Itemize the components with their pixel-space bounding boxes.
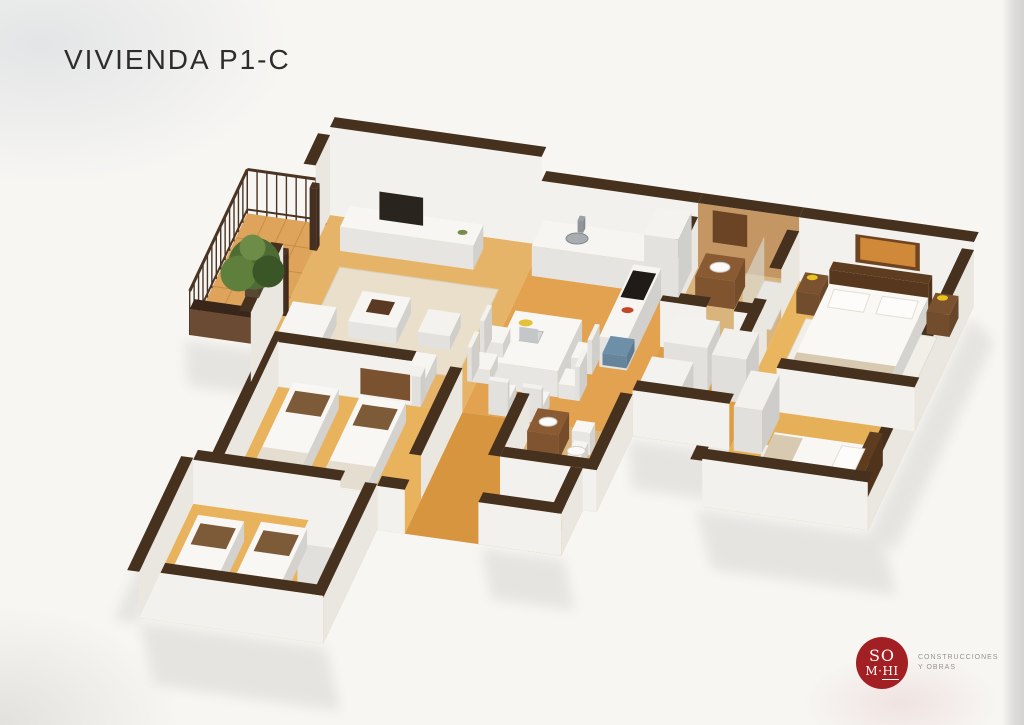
balcony-plant-foliage-1: [220, 255, 256, 291]
laptop-screen: [519, 327, 537, 344]
brand-logo-hi: HI: [882, 664, 898, 680]
vase-flowers: [458, 230, 468, 235]
fruit-bowl: [519, 319, 533, 326]
shadow-small-room: [481, 549, 574, 611]
brand-logo-text: CONSTRUCCIONES Y OBRAS: [918, 653, 999, 674]
brand-logo-m: M·: [865, 664, 882, 678]
balcony-door-post-1-side: [317, 183, 320, 251]
bedroom2-closet-front: [734, 407, 763, 455]
brand-logo-circle: SO M·HI: [856, 637, 908, 689]
chair-1-back-front: [480, 321, 485, 356]
brand-logo-mhi: M·HI: [865, 665, 898, 678]
chair-2-back-front: [467, 347, 472, 382]
brand-logo-line2: Y OBRAS: [918, 663, 999, 674]
bath1-mirror: [713, 210, 748, 247]
balcony-door-post-2-side: [286, 249, 289, 317]
master-nightstand-right-front: [927, 312, 950, 337]
bath1-sink: [710, 262, 730, 272]
floor-plan-shapes: [114, 117, 995, 711]
balcony-plant-foliage-2: [252, 255, 284, 287]
master-lamp-left: [807, 275, 818, 281]
chair-4-seat-front: [558, 384, 577, 401]
chair-4-back-front: [575, 366, 580, 401]
brand-logo-so: SO: [869, 648, 895, 665]
wall-jog-face: [377, 486, 405, 534]
kitchen-sink: [566, 233, 588, 244]
chair-3-back-front: [588, 340, 593, 375]
floor-plan: [0, 0, 1024, 725]
brand-logo: SO M·HI CONSTRUCCIONES Y OBRAS: [856, 637, 999, 689]
kitchen-pot: [622, 307, 634, 313]
balcony-door-post-1-front: [310, 188, 317, 251]
scanned-page: { "title": "VIVIENDA P1-C", "logo": { "t…: [0, 0, 1024, 725]
kitchen-faucet-front: [578, 220, 584, 233]
master-lamp-right: [937, 295, 948, 301]
chair-5-back-front: [488, 380, 507, 417]
balcony-plant-foliage-3: [239, 234, 265, 260]
brand-logo-line1: CONSTRUCCIONES: [918, 653, 999, 664]
toilet-bowl: [567, 446, 585, 455]
bath2-sink: [539, 417, 557, 426]
